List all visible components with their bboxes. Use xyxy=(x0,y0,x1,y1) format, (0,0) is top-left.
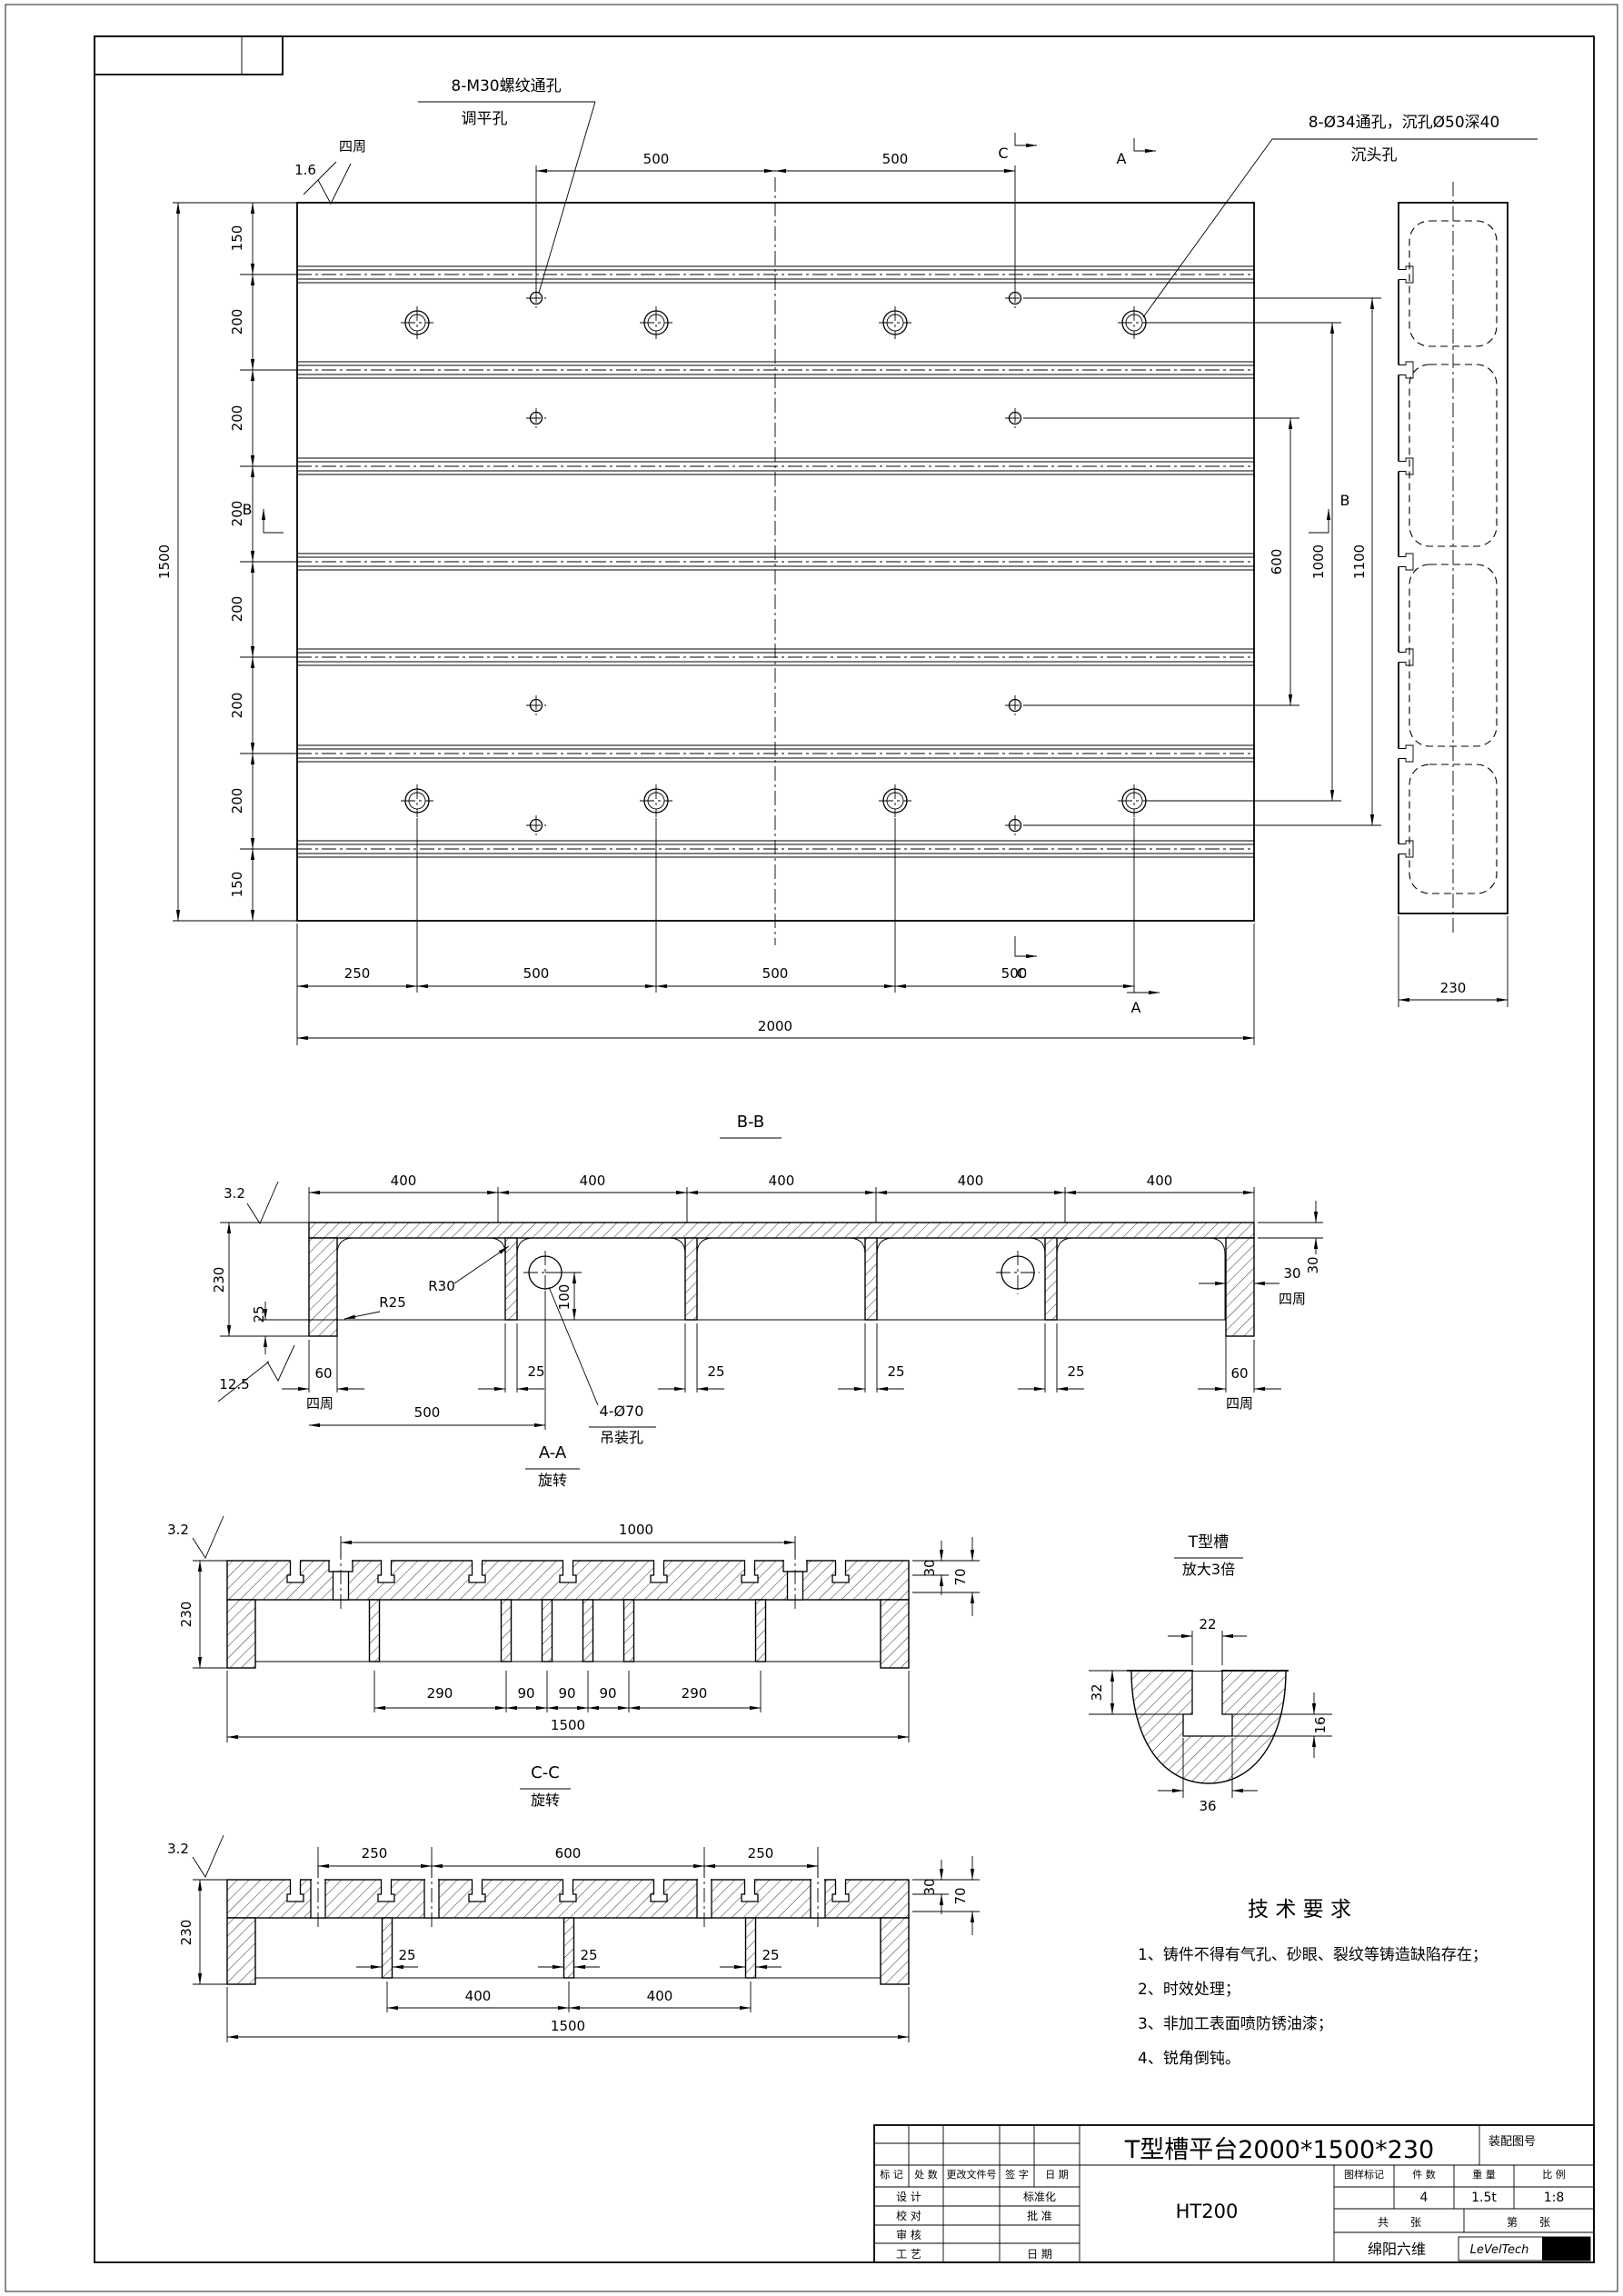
dim-bb-60l: 60 xyxy=(314,1365,332,1382)
dim-det-16: 16 xyxy=(1312,1716,1329,1733)
engineering-drawing: 8-M30螺纹通孔调平孔四周1.68-Ø34通孔，沉孔Ø50深40沉头孔5005… xyxy=(0,0,1623,2296)
sheet-total: 共 张 xyxy=(1378,2216,1421,2229)
section-letter-a-top: A xyxy=(1117,150,1127,167)
dim-cc-30: 30 xyxy=(921,1878,938,1895)
dim-bb-60r: 60 xyxy=(1230,1365,1248,1382)
dim-aa-30: 30 xyxy=(921,1559,938,1576)
tech-item-3: 3、非加工表面喷防锈油漆； xyxy=(1138,2015,1333,2033)
dim-right-600: 600 xyxy=(1269,549,1285,575)
detail-subtitle: 放大3倍 xyxy=(1182,1561,1235,1578)
roughness-top: 1.6 xyxy=(294,162,316,178)
dim-aa-290b: 290 xyxy=(682,1685,708,1702)
col-sign: 签 字 xyxy=(1005,2168,1029,2181)
tslot-detail xyxy=(1089,1558,1332,1798)
dim-aa-1000: 1000 xyxy=(619,1522,653,1538)
dim-left-200e: 200 xyxy=(229,693,245,719)
dim-left-150a: 150 xyxy=(229,225,245,252)
view-label-aa-rotate: 旋转 xyxy=(538,1472,567,1489)
dim-bb-25v: 25 xyxy=(251,1305,267,1323)
col-scale: 比 例 xyxy=(1542,2168,1566,2181)
dim-aa-90b: 90 xyxy=(558,1685,575,1702)
row-process: 工 艺 xyxy=(896,2248,921,2261)
dim-bb-400c: 400 xyxy=(769,1173,795,1189)
roughness-cc: 3.2 xyxy=(167,1841,189,1857)
dim-aa-1500: 1500 xyxy=(551,1717,585,1733)
note-thread-line2: 调平孔 xyxy=(462,110,508,128)
dim-cc-70: 70 xyxy=(952,1887,969,1904)
dim-bb-25d: 25 xyxy=(1067,1363,1084,1380)
row-check: 校 对 xyxy=(896,2209,921,2222)
row-approve: 批 准 xyxy=(1027,2209,1052,2222)
dim-right-1000: 1000 xyxy=(1310,544,1327,579)
note-bb-around-wall: 四周 xyxy=(1279,1291,1306,1307)
dim-bb-100: 100 xyxy=(556,1284,573,1311)
surface-finish-icon xyxy=(193,1516,224,1558)
dim-bb-400e: 400 xyxy=(1147,1173,1173,1189)
section-letter-a-bot: A xyxy=(1131,999,1141,1016)
dim-left-1500: 1500 xyxy=(156,544,173,579)
dim-aa-230: 230 xyxy=(178,1602,194,1628)
col-date: 日 期 xyxy=(1045,2169,1069,2181)
logo-leveltech: LeVelTech xyxy=(1470,2243,1529,2257)
dim-cc-400a: 400 xyxy=(465,1988,492,2004)
dim-cc-25c: 25 xyxy=(762,1947,779,1963)
value-qty: 4 xyxy=(1420,2191,1429,2205)
dim-cc-25a: 25 xyxy=(398,1947,415,1963)
row-audit: 审 核 xyxy=(896,2228,921,2241)
tech-item-2: 2、时效处理； xyxy=(1138,1981,1240,1999)
section-marker-c-top xyxy=(1015,133,1037,145)
tech-item-1: 1、铸件不得有气孔、砂眼、裂纹等铸造缺陷存在； xyxy=(1138,1946,1488,1964)
dim-aa-70: 70 xyxy=(952,1568,969,1585)
dim-aa-90c: 90 xyxy=(599,1685,616,1702)
dim-bb-r25: R25 xyxy=(379,1294,406,1311)
dim-top-500b: 500 xyxy=(882,151,909,167)
side-view xyxy=(1398,182,1508,1007)
view-label-bb: B-B xyxy=(737,1113,765,1132)
assembly-no-label: 装配图号 xyxy=(1489,2135,1536,2149)
dim-bot-2000: 2000 xyxy=(758,1018,792,1034)
dim-cc-250a: 250 xyxy=(362,1845,388,1862)
view-label-aa: A-A xyxy=(539,1443,567,1462)
detail-title: T型槽 xyxy=(1188,1533,1229,1552)
note-lift-line1: 4-Ø70 xyxy=(600,1403,644,1420)
section-cc-view xyxy=(193,1789,980,2042)
dim-bb-r30: R30 xyxy=(428,1278,455,1294)
dim-cc-230: 230 xyxy=(178,1920,194,1946)
dim-cc-25b: 25 xyxy=(580,1947,597,1963)
dim-cc-1500: 1500 xyxy=(551,2018,585,2034)
drawing-title: T型槽平台2000*1500*230 xyxy=(1124,2136,1434,2164)
row-standardize: 标准化 xyxy=(1023,2191,1056,2203)
material: HT200 xyxy=(1176,2201,1239,2222)
row-design: 设 计 xyxy=(896,2191,921,2203)
section-marker-b-right xyxy=(1309,509,1329,533)
row-date2: 日 期 xyxy=(1027,2248,1052,2261)
drawing-sheet: 8-M30螺纹通孔调平孔四周1.68-Ø34通孔，沉孔Ø50深40沉头孔5005… xyxy=(0,0,1623,2296)
col-mark: 标 记 xyxy=(880,2168,903,2181)
col-weight: 重 量 xyxy=(1472,2168,1496,2181)
dim-bot-500a: 500 xyxy=(523,965,550,982)
dim-left-200a: 200 xyxy=(229,309,245,335)
note-bb-around-l: 四周 xyxy=(306,1395,334,1412)
col-changefile: 更改文件号 xyxy=(947,2168,997,2181)
dim-bb-400d: 400 xyxy=(958,1173,984,1189)
dim-bb-230: 230 xyxy=(211,1267,227,1293)
dim-bot-250: 250 xyxy=(344,965,371,982)
dim-bb-25c: 25 xyxy=(887,1363,904,1380)
dim-side-230: 230 xyxy=(1440,980,1467,996)
dim-bot-500b: 500 xyxy=(762,965,789,982)
section-marker-b-left xyxy=(264,509,284,533)
dim-left-200b: 200 xyxy=(229,405,245,432)
dim-det-32: 32 xyxy=(1089,1683,1105,1701)
tech-title: 技 术 要 求 xyxy=(1248,1898,1351,1922)
note-around-top: 四周 xyxy=(339,138,366,155)
dim-bb-400a: 400 xyxy=(391,1173,417,1189)
company-name: 绵阳六维 xyxy=(1368,2241,1426,2258)
dim-aa-290a: 290 xyxy=(427,1685,453,1702)
roughness-bb: 3.2 xyxy=(224,1185,245,1202)
dim-bb-25b: 25 xyxy=(707,1363,724,1380)
note-lift-line2: 吊装孔 xyxy=(600,1429,643,1446)
dim-bb-30wall: 30 xyxy=(1283,1265,1300,1282)
view-label-cc-rotate: 旋转 xyxy=(531,1792,560,1809)
plan-view xyxy=(173,102,1538,1045)
tech-item-4: 4、锐角倒钝。 xyxy=(1138,2050,1240,2068)
dim-cc-600: 600 xyxy=(555,1845,582,1862)
dim-bb-25a: 25 xyxy=(527,1363,544,1380)
section-letter-c-bot: C xyxy=(1017,965,1026,982)
section-letter-b-left: B xyxy=(243,501,253,518)
note-thread-line1: 8-M30螺纹通孔 xyxy=(451,77,561,95)
note-cbore-line1: 8-Ø34通孔，沉孔Ø50深40 xyxy=(1309,114,1500,132)
section-aa-view xyxy=(193,1516,980,1742)
roughness-aa: 3.2 xyxy=(167,1522,189,1538)
dim-cc-400b: 400 xyxy=(647,1988,673,2004)
dim-left-150b: 150 xyxy=(229,872,245,898)
dim-det-22: 22 xyxy=(1199,1616,1216,1632)
value-scale: 1:8 xyxy=(1544,2191,1565,2205)
value-weight: 1.5t xyxy=(1471,2191,1497,2205)
dim-top-500a: 500 xyxy=(643,151,670,167)
dim-right-1100: 1100 xyxy=(1351,544,1368,579)
col-count: 处 数 xyxy=(914,2169,938,2181)
section-letter-c-top: C xyxy=(998,145,1008,162)
surface-finish-icon xyxy=(193,1835,224,1877)
view-label-cc: C-C xyxy=(531,1763,560,1782)
roughness-bb-bottom: 12.5 xyxy=(219,1376,249,1393)
note-bb-around-r: 四周 xyxy=(1226,1395,1253,1412)
note-cbore-line2: 沉头孔 xyxy=(1351,146,1398,165)
dim-left-200f: 200 xyxy=(229,788,245,814)
surface-finish-icon xyxy=(267,1345,294,1381)
col-qty: 件 数 xyxy=(1412,2169,1436,2181)
sheet-no: 第 张 xyxy=(1507,2216,1550,2229)
dim-det-36: 36 xyxy=(1199,1798,1216,1814)
dim-aa-90a: 90 xyxy=(517,1685,534,1702)
surface-finish-icon xyxy=(247,1182,278,1223)
dim-left-200d: 200 xyxy=(229,596,245,623)
dim-bb-500: 500 xyxy=(414,1404,441,1421)
logo-cn: 六维科技 xyxy=(1546,2242,1586,2255)
section-letter-b-right: B xyxy=(1340,492,1350,509)
col-stage-mark: 图样标记 xyxy=(1344,2168,1384,2181)
section-marker-a-top xyxy=(1134,138,1156,151)
section-marker-c-bottom xyxy=(1015,936,1037,956)
surface-finish-icon xyxy=(318,164,351,204)
dim-bb-400b: 400 xyxy=(580,1173,606,1189)
dim-cc-250b: 250 xyxy=(748,1845,774,1862)
dim-bb-30top: 30 xyxy=(1305,1256,1321,1273)
